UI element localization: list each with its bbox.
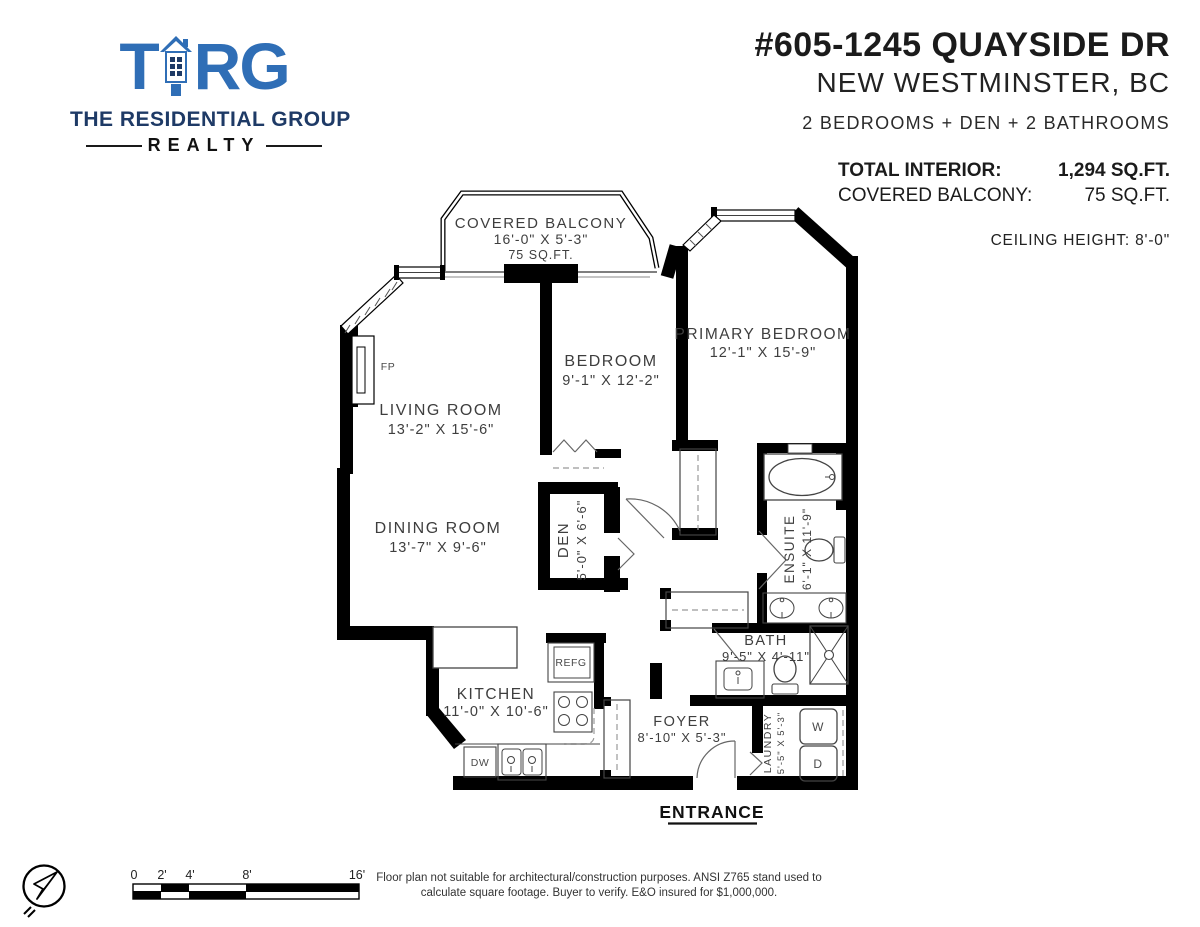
label-laundry: LAUNDRY (762, 713, 774, 774)
scale-label-0: 0 (131, 868, 138, 882)
label-primary-bedroom: PRIMARY BEDROOM (675, 326, 852, 343)
dims-bedroom: 9'-1" X 12'-2" (562, 373, 660, 389)
door-entrance-arc (697, 741, 735, 778)
disclaimer-line2: calculate square footage. Buyer to verif… (421, 887, 778, 899)
label-dining-room: DINING ROOM (375, 520, 502, 537)
disclaimer: Floor plan not suitable for architectura… (376, 872, 822, 899)
dims-foyer: 8'-10" X 5'-3" (638, 730, 727, 745)
fridge-label: REFG (555, 657, 586, 669)
entrance-label: ENTRANCE (659, 802, 764, 822)
fireplace-label: FP (381, 361, 395, 373)
dims-kitchen: 11'-0" X 10'-6" (443, 704, 549, 720)
scale-label-16: 16' (349, 868, 365, 882)
floor-plan: FP (0, 0, 1200, 927)
scale-label-2: 2' (157, 868, 166, 882)
window-primary-chamfer (683, 215, 721, 251)
label-den: DEN (555, 522, 572, 558)
dims-dining-room: 13'-7" X 9'-6" (389, 540, 487, 556)
door-bedroom-closet-b (575, 440, 597, 452)
ensuite-vanity (763, 593, 846, 623)
bath-toilet-tank (772, 684, 798, 694)
label-foyer: FOYER (653, 714, 710, 730)
walls (337, 212, 858, 790)
label-bath: BATH (744, 633, 788, 649)
scale-bar: 0 2' 4' 8' 16' (131, 868, 366, 899)
compass-icon (24, 866, 65, 918)
bay-window-living (341, 275, 403, 334)
scale-label-4: 4' (185, 868, 194, 882)
floor-plan-page: { "logo": { "brand_t": "T", "brand_rg": … (0, 0, 1200, 927)
door-den-bifold (618, 538, 634, 570)
dishwasher-label: DW (471, 757, 490, 769)
area-covered-balcony: 75 SQ.FT. (508, 248, 573, 262)
bath-vanity (716, 661, 764, 698)
kitchen-peninsula-counter (433, 627, 517, 668)
label-covered-balcony: COVERED BALCONY (455, 215, 628, 232)
scale-label-8: 8' (242, 868, 251, 882)
dims-ensuite: 6'-1" X 11'-9" (800, 508, 814, 590)
label-kitchen: KITCHEN (457, 686, 536, 703)
fireplace: FP (352, 336, 395, 404)
door-bedroom-closet-a (553, 440, 575, 452)
dims-covered-balcony: 16'-0" X 5'-3" (494, 231, 589, 247)
entrance: ENTRANCE (659, 802, 764, 824)
dryer-label: D (813, 757, 822, 771)
label-ensuite: ENSUITE (782, 514, 797, 583)
disclaimer-line1: Floor plan not suitable for architectura… (376, 872, 822, 884)
bathtub (764, 454, 842, 500)
dims-laundry: 5'-5" X 5'-3" (776, 712, 787, 774)
dims-living-room: 13'-2" X 15'-6" (388, 422, 495, 438)
dims-bath: 9'-5" X 4'-11" (722, 649, 810, 664)
label-living-room: LIVING ROOM (379, 402, 502, 419)
label-bedroom: BEDROOM (564, 353, 657, 370)
dims-primary-bedroom: 12'-1" X 15'-9" (710, 345, 817, 361)
washer-label: W (812, 720, 824, 734)
dims-den: 5'-0" X 6'-6" (574, 500, 589, 581)
ensuite-toilet-tank (834, 537, 845, 563)
door-laundry-bifold (750, 752, 762, 775)
